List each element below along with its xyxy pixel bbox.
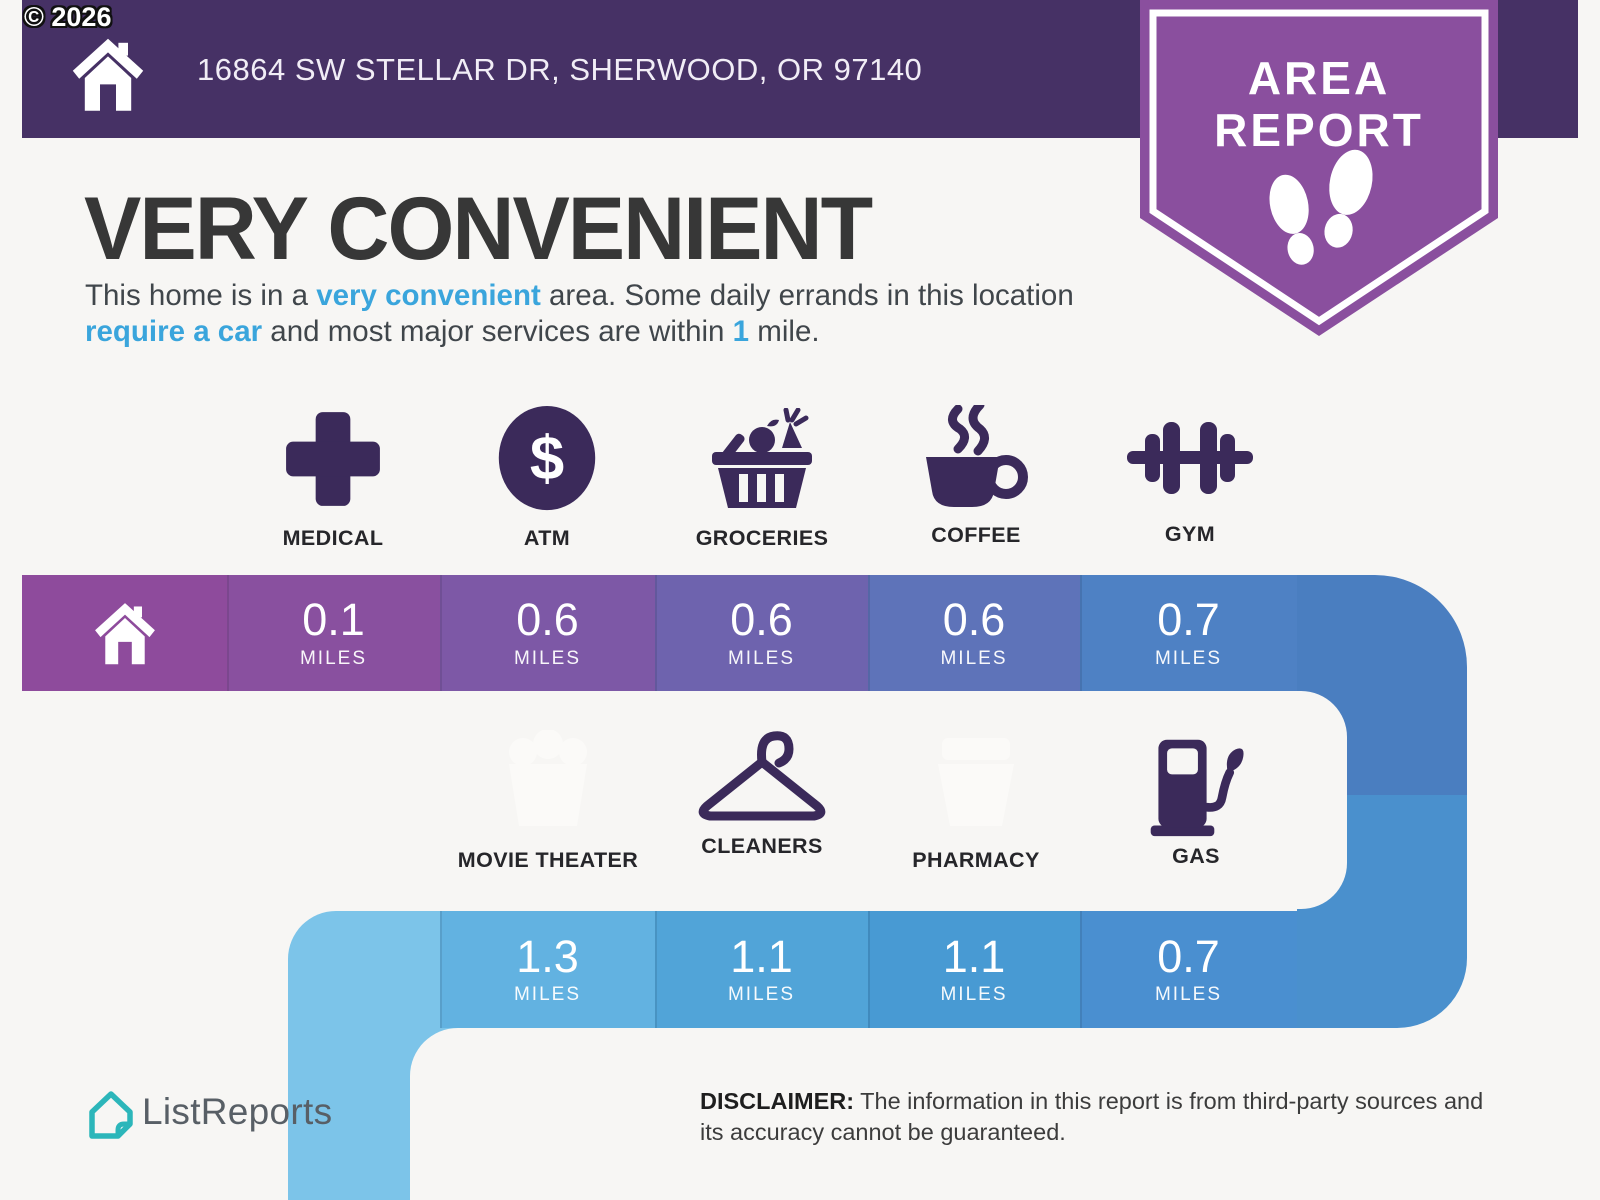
property-address: 16864 SW STELLAR DR, SHERWOOD, OR 97140 [197, 52, 922, 88]
band-segment-gas: 0.7 MILES [1080, 911, 1297, 1028]
dumbbell-icon [1123, 418, 1257, 498]
band2-leader-segment [288, 911, 440, 1028]
page-title: VERY CONVENIENT [84, 178, 871, 281]
band-segment-pharmacy: 1.1 MILES [868, 911, 1080, 1028]
svg-text:REPORT: REPORT [1214, 104, 1424, 156]
column-atm: $ ATM [467, 405, 627, 551]
disclaimer: DISCLAIMER: The information in this repo… [700, 1086, 1500, 1147]
band-segment-cleaners: 1.1 MILES [655, 911, 868, 1028]
column-movie-theater: MOVIE THEATER [448, 730, 648, 873]
movie-theater-icon [493, 730, 603, 828]
column-gas: GAS [1116, 732, 1276, 869]
listreports-house-icon [84, 1084, 138, 1144]
column-gym: GYM [1105, 418, 1275, 547]
svg-text:AREA: AREA [1248, 52, 1390, 104]
copyright-text: © 2026 [24, 2, 111, 33]
band-segment-movie-theater: 1.3 MILES [440, 911, 655, 1028]
highlight-require-a-car: require a car [85, 315, 262, 348]
band-segment-gym: 0.7 MILES [1080, 575, 1297, 691]
disclaimer-label: DISCLAIMER: [700, 1088, 854, 1114]
band-segment-medical: 0.1 MILES [227, 575, 440, 691]
band-segment-atm: 0.6 MILES [440, 575, 655, 691]
listreports-logo-text: ListReports [142, 1091, 332, 1133]
band-home-segment [22, 575, 227, 691]
home-icon [68, 34, 148, 114]
medical-cross-icon [282, 408, 384, 510]
coffee-cup-icon [918, 405, 1034, 513]
hanger-icon [691, 718, 833, 830]
dollar-atm-icon: $ [495, 405, 599, 513]
highlight-very-convenient: very convenient [316, 279, 541, 312]
column-medical: MEDICAL [253, 408, 413, 551]
gas-pump-icon [1143, 732, 1249, 838]
column-groceries: GROCERIES [682, 408, 842, 551]
area-report-page: 16864 SW STELLAR DR, SHERWOOD, OR 97140 … [0, 0, 1600, 1200]
highlight-one-mile: 1 [733, 315, 749, 348]
summary-paragraph: This home is in a very convenient area. … [85, 278, 1090, 350]
column-cleaners: CLEANERS [682, 718, 842, 859]
band-segment-coffee: 0.6 MILES [868, 575, 1080, 691]
area-report-badge: AREA REPORT [1140, 0, 1498, 338]
grocery-basket-icon [704, 408, 820, 512]
band-segment-groceries: 0.6 MILES [655, 575, 868, 691]
column-pharmacy: PHARMACY [896, 730, 1056, 873]
svg-text:$: $ [530, 424, 564, 493]
column-coffee: COFFEE [896, 405, 1056, 548]
home-icon [91, 599, 159, 667]
pharmacy-icon [924, 730, 1028, 828]
